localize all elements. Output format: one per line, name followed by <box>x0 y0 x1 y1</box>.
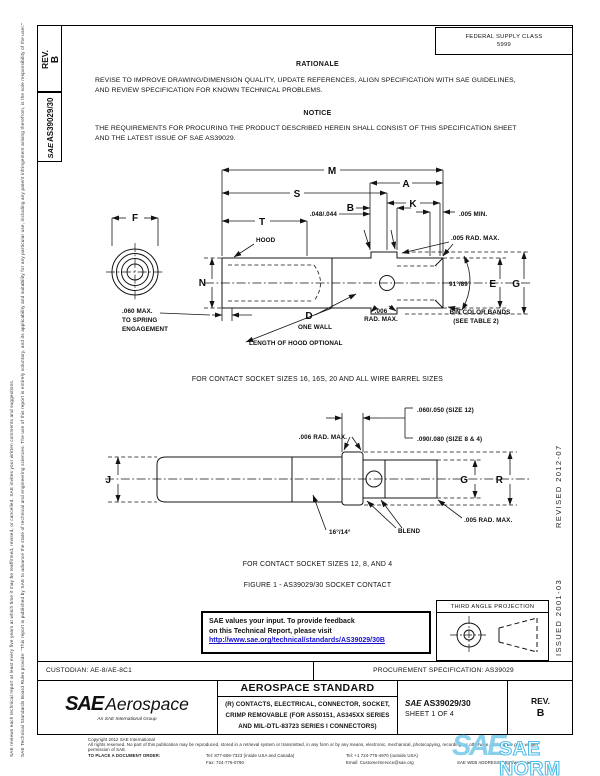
third-angle-projection-label: THIRD ANGLE PROJECTION <box>437 601 548 613</box>
note-bin-bands-line1: BIN COLOR BANDS <box>450 309 511 316</box>
rationale-heading: RATIONALE <box>62 61 573 68</box>
note-hood: HOOD <box>256 237 276 244</box>
note-spring-line1: .060 MAX. <box>122 308 153 315</box>
feedback-line2: on this Technical Report, please visit <box>209 627 423 637</box>
watermark-norm-text: SAE NORM <box>499 739 600 776</box>
note-blend: BLEND <box>398 528 421 535</box>
fig1-end-view <box>106 218 164 301</box>
email-line: Email: CustomerService@sae.org <box>346 760 414 765</box>
feedback-link[interactable]: http://www.sae.org/technical/standards/A… <box>209 637 385 644</box>
document-number-cell: SAEAS39029/30 SHEET 1 OF 4 <box>398 681 508 736</box>
order-label: TO PLACE A DOCUMENT ORDER: <box>88 753 160 758</box>
note-spring-line3: ENGAGEMENT <box>122 326 168 333</box>
figure1-top-caption: FOR CONTACT SOCKET SIZES 16, 16S, 20 AND… <box>62 376 573 383</box>
feedback-line1: SAE values your input. To provide feedba… <box>209 617 423 627</box>
dim-label-g: G <box>512 279 520 290</box>
revision-label: REV. <box>531 696 550 706</box>
dim-label-r: R <box>496 475 504 486</box>
feedback-box: SAE values your input. To provide feedba… <box>201 611 431 654</box>
tel-outside: Tel: +1 724-776-4970 (outside USA) <box>346 753 418 758</box>
figure1-bottom-drawing: J G R .006 RAD. MAX. .060/.050 (SIZE 12)… <box>60 400 575 558</box>
figure1-title-caption: FIGURE 1 - AS39029/30 SOCKET CONTACT <box>62 582 573 589</box>
note-spring-line2: TO SPRING <box>122 317 157 324</box>
note-size-12: .060/.050 (SIZE 12) <box>417 407 474 414</box>
fax-line: Fax: 724-776-0790 <box>206 760 244 765</box>
note-005-min: .005 MIN. <box>459 211 487 218</box>
note-tolerance-048: .048/.044 <box>310 211 338 218</box>
fig2-leader-lines <box>313 437 462 530</box>
rev-tab-label: REV. <box>40 50 50 69</box>
federal-supply-class-box: FEDERAL SUPPLY CLASS 5999 <box>435 27 573 55</box>
sae-logo-small: SAE <box>46 143 55 158</box>
figure1-top-drawing: M A S K T F D ONE WALL .006 RAD. MAX. BI… <box>60 158 575 395</box>
tel-inside: Tel: 877-606-7323 (inside USA and Canada… <box>206 753 294 758</box>
sae-norm-watermark: SAE SAE NORM INTERNATIONAL STANDARDS <box>452 732 600 776</box>
document-title: (R) CONTACTS, ELECTRICAL, CONNECTOR, SOC… <box>218 697 397 736</box>
note-bin-bands-line2: (SEE TABLE 2) <box>453 318 499 325</box>
fsc-value: 5999 <box>436 41 572 49</box>
doc-number-vertical: AS39029/30 <box>46 98 55 142</box>
admin-row: CUSTODIAN: AE-8/AE-8C1 PROCUREMENT SPECI… <box>37 661 573 681</box>
dim-label-f: F <box>132 213 138 224</box>
document-title-line1: (R) CONTACTS, ELECTRICAL, CONNECTOR, SOC… <box>218 699 397 710</box>
margin-disclaimer-rules: SAE Technical Standards Board Rules prov… <box>20 23 25 757</box>
document-title-line2: CRIMP REMOVABLE (FOR AS50151, AS345XX SE… <box>218 710 397 721</box>
doc-cell-sae-logo: SAE <box>405 699 421 708</box>
dim-label-g2: G <box>460 475 468 486</box>
custodian-cell: CUSTODIAN: AE-8/AE-8C1 <box>37 662 314 680</box>
dim-label-j: J <box>105 475 111 486</box>
dim-label-n: N <box>199 278 206 289</box>
title-block: SAEAerospace An SAE International Group … <box>37 681 573 736</box>
standard-type-header: AEROSPACE STANDARD <box>218 681 397 697</box>
margin-disclaimer-review: SAE reviews each technical report at lea… <box>9 380 14 757</box>
note-hood-optional: LENGTH OF HOOD OPTIONAL <box>249 340 343 347</box>
sae-aerospace-logo: SAEAerospace An SAE International Group <box>37 681 218 736</box>
notice-heading: NOTICE <box>62 110 573 117</box>
fsc-label: FEDERAL SUPPLY CLASS <box>436 33 572 41</box>
doc-cell-number: AS39029/30 <box>423 698 470 708</box>
figure1-bottom-caption: FOR CONTACT SOCKET SIZES 12, 8, AND 4 <box>62 561 573 568</box>
dim-label-a: A <box>402 179 409 190</box>
note-rad006-line1: .006 <box>375 308 388 315</box>
sheet-indicator: SHEET 1 OF 4 <box>405 711 507 718</box>
note-size-8-4: .090/.080 (SIZE 8 & 4) <box>417 436 482 443</box>
dim-label-b: B <box>347 203 354 214</box>
issued-date-mark: ISSUED 2001-03 <box>554 579 563 656</box>
note-rad006-line2: RAD. MAX. <box>364 316 398 323</box>
note-one-wall: ONE WALL <box>298 324 332 331</box>
fig1-body-outline <box>204 252 532 314</box>
third-angle-projection-symbol <box>437 613 548 657</box>
procurement-spec-cell: PROCUREMENT SPECIFICATION: AS39029 <box>314 667 573 674</box>
note-005-rad-max: .005 RAD. MAX. <box>451 235 499 242</box>
note-angle-91-89: 91°/89° <box>449 280 471 288</box>
note-005-rad-max-2: .005 RAD. MAX. <box>464 517 512 524</box>
dim-label-t: T <box>259 217 265 228</box>
logo-tagline: An SAE International Group <box>97 717 156 722</box>
dim-label-d: D <box>305 311 312 322</box>
note-006-rad-max: .006 RAD. MAX. <box>299 434 347 441</box>
document-title-line3: AND MIL-DTL-83723 SERIES I CONNECTORS) <box>218 721 397 732</box>
revised-date-mark: REVISED 2012-07 <box>554 444 563 528</box>
dim-label-e: E <box>489 279 496 290</box>
fig1-leader-lines <box>234 230 462 342</box>
rev-tab-value: B <box>50 56 61 63</box>
logo-sae-text: SAE <box>65 693 103 715</box>
third-angle-projection-box: THIRD ANGLE PROJECTION <box>436 600 549 661</box>
dim-label-k: K <box>409 199 417 210</box>
rev-tab-box: REV. B <box>37 25 62 92</box>
rationale-body: REVISE TO IMPROVE DRAWING/DIMENSION QUAL… <box>95 76 525 96</box>
dim-label-m: M <box>328 166 336 177</box>
note-angle-16-14: 16°/14° <box>329 528 351 536</box>
fig2-extension-lines <box>342 408 413 452</box>
revision-value: B <box>537 707 545 719</box>
dim-label-s: S <box>294 189 301 200</box>
watermark-sae-glyph: SAE <box>452 732 504 760</box>
notice-body: THE REQUIREMENTS FOR PROCURING THE PRODU… <box>95 124 525 144</box>
document-page: SAE Technical Standards Board Rules prov… <box>0 0 600 776</box>
fig2-dimension-lines <box>118 418 510 505</box>
revision-cell: REV. B <box>508 681 573 736</box>
logo-aerospace-text: Aerospace <box>105 694 189 714</box>
fig1-dimension-lines <box>160 170 524 315</box>
doc-number-tab-box: SAE AS39029/30 <box>37 92 62 162</box>
